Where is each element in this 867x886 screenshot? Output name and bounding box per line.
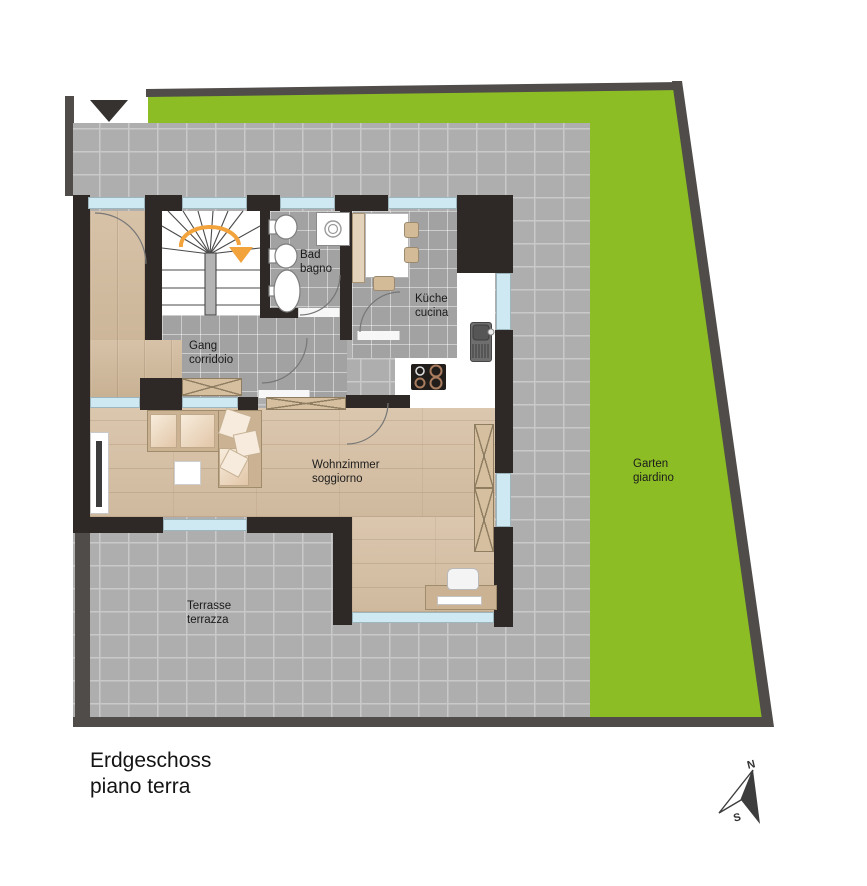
- entrance-arrow-icon: [90, 100, 128, 122]
- window: [352, 612, 494, 623]
- door-threshold-bathroom: [298, 308, 340, 317]
- floor-stair-room: [162, 211, 260, 315]
- window: [280, 197, 335, 209]
- wall-segment: [145, 195, 182, 211]
- wall-bottom-main: [73, 517, 163, 533]
- label-kitchen-de: Küche: [415, 293, 448, 305]
- label-garden-it: giardino: [633, 472, 674, 484]
- site-border-right: [672, 81, 774, 727]
- kitchen-living-opening: [410, 396, 495, 408]
- sofa-cushion: [180, 414, 215, 448]
- window: [163, 519, 247, 531]
- label-bathroom-de: Bad: [300, 249, 320, 261]
- floor-plan: N S Bad bagno Küche cucina Gang corridoi…: [0, 0, 867, 886]
- wall-kitchen-living: [346, 395, 410, 408]
- room-label-bathroom: Bad bagno: [300, 249, 332, 276]
- terrace-border-left: [75, 533, 90, 717]
- desk-chair: [447, 568, 479, 590]
- title-de: Erdgeschoss: [90, 749, 211, 772]
- room-label-corridor: Gang corridoio: [189, 340, 233, 367]
- wall-extension-left: [333, 517, 352, 625]
- page-title: Erdgeschoss piano terra: [90, 748, 211, 800]
- wall-segment: [247, 195, 280, 211]
- chair: [404, 222, 419, 238]
- desk-object: [437, 596, 482, 605]
- site-border-top: [146, 82, 680, 97]
- window: [182, 197, 247, 209]
- label-living-it: soggiorno: [312, 473, 363, 485]
- chair: [373, 276, 395, 291]
- sofa-cushion: [150, 414, 177, 448]
- washing-machine: [316, 212, 350, 246]
- wardrobe: [474, 488, 494, 552]
- wall-mid-block: [140, 378, 182, 410]
- label-living-de: Wohnzimmer: [312, 459, 380, 471]
- room-label-garden: Garten giardino: [633, 458, 674, 485]
- label-bathroom-it: bagno: [300, 263, 332, 275]
- label-terrace-de: Terrasse: [187, 600, 231, 612]
- wall-right-low: [494, 527, 513, 627]
- site-border-bottom: [73, 717, 770, 727]
- dining-bench: [352, 213, 365, 283]
- door-threshold-kitchen: [357, 331, 400, 340]
- wall-bath-left: [260, 211, 270, 318]
- wall-right-mid: [495, 330, 513, 473]
- wall-stair-left: [145, 211, 162, 340]
- kitchen-sink-unit: [470, 322, 492, 362]
- wall-left: [73, 195, 90, 533]
- wall-corner-block: [457, 195, 513, 273]
- cooktop: [411, 364, 446, 390]
- window: [182, 397, 238, 408]
- coffee-table: [174, 461, 201, 485]
- sideboard: [182, 378, 242, 396]
- room-label-kitchen: Küche cucina: [415, 293, 448, 320]
- window: [496, 473, 511, 527]
- wall-mid-block: [238, 397, 258, 410]
- dining-table: [365, 213, 409, 278]
- label-garden-de: Garten: [633, 458, 668, 470]
- chair: [404, 247, 419, 263]
- compass-icon: N S: [719, 758, 760, 825]
- window: [388, 197, 457, 209]
- room-label-living-room: Wohnzimmer soggiorno: [312, 459, 380, 486]
- compass-south-label: S: [732, 811, 742, 824]
- wall-bath-bottom: [260, 308, 298, 318]
- label-corridor-de: Gang: [189, 340, 217, 352]
- window: [90, 397, 140, 408]
- label-corridor-it: corridoio: [189, 354, 233, 366]
- wardrobe: [474, 424, 494, 488]
- tv-screen: [96, 441, 102, 507]
- window: [496, 273, 511, 330]
- room-label-terrace: Terrasse terrazza: [187, 600, 231, 627]
- label-kitchen-it: cucina: [415, 307, 448, 319]
- title-it: piano terra: [90, 775, 190, 798]
- label-terrace-it: terrazza: [187, 614, 229, 626]
- sofa-cushion: [219, 448, 249, 486]
- window: [88, 197, 145, 209]
- sideboard: [266, 397, 346, 410]
- compass-north-label: N: [746, 758, 757, 772]
